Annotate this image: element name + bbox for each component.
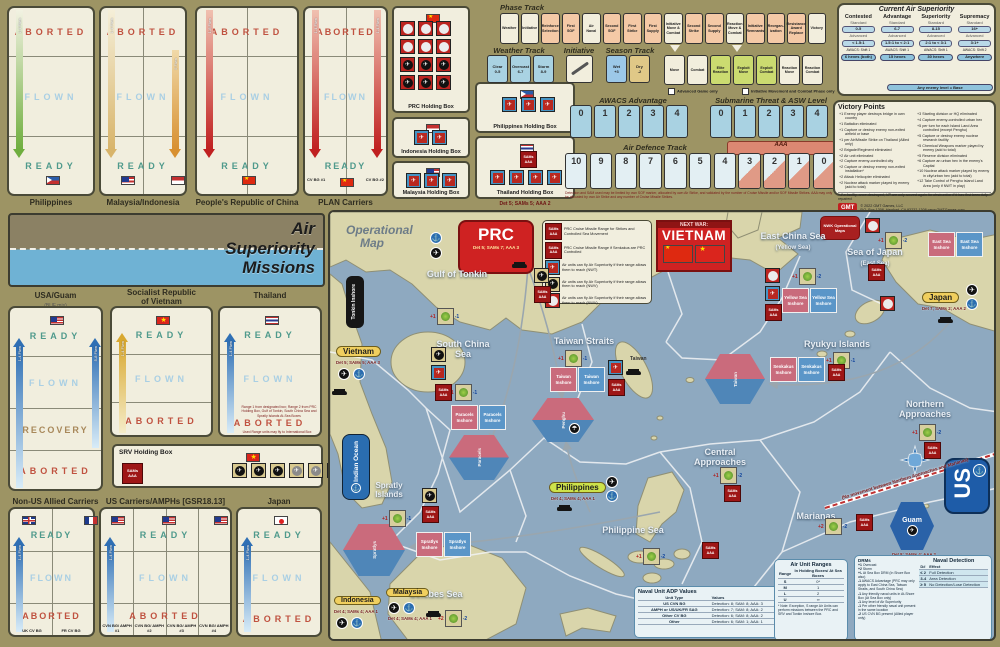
prc-flag-icon — [242, 176, 256, 185]
taiwan-label: Taiwan — [630, 356, 647, 362]
segment-cell[interactable]: Reaction Combat — [802, 55, 823, 85]
philippines-holding-box[interactable]: ✈ ✈ ✈ Philippines Holding Box — [475, 82, 575, 133]
air-superiority-panel: Current Air Superiority Contested Standa… — [837, 3, 996, 96]
air-unit-counter[interactable]: ✈ — [406, 173, 421, 188]
col-label: CV BG #2 — [366, 177, 384, 182]
air-unit-counter[interactable]: ✈ — [232, 463, 247, 478]
air-strike-icon[interactable]: ✈ — [336, 617, 348, 629]
air-unit-counter[interactable]: ✈ — [431, 347, 446, 362]
awacs-cell[interactable]: 4 — [666, 105, 688, 138]
air-defence-note: Detection and SAM used may be limited by… — [565, 191, 833, 200]
air-unit-counter[interactable]: ✈ — [251, 463, 266, 478]
prc-holding-box[interactable]: ✈✈✈ ✈✈✈ PRC Holding Box — [392, 6, 470, 113]
detection-marker-scs[interactable]: +1-1 — [448, 384, 477, 401]
flown-arrow: 1-4 Flwn — [309, 10, 322, 158]
indian-ocean-box[interactable]: Indian Ocean ⚓ — [342, 434, 370, 500]
vp-footnote: * If a facility, once destroyed, VP are … — [838, 192, 991, 202]
naval-anchor-icon[interactable]: ⚓ — [430, 232, 442, 244]
pointer-down-icon — [670, 45, 680, 52]
nwk-maps-box: NWK Operational Maps — [820, 216, 860, 240]
anchor-icon: ⚓ — [351, 483, 361, 493]
mission-box-usa-guam: READY FLOWN RECOVERY ABORTED 1-4 Flwn 5-… — [8, 306, 103, 491]
air-unit-counter[interactable] — [436, 21, 451, 36]
sea-label-straits: Taiwan Straits — [544, 337, 624, 347]
detection-marker-philsea[interactable]: +1-2 — [636, 548, 665, 565]
vp-item: +5 per turn for each Island Land Area co… — [923, 124, 991, 133]
mission-box-plan-carriers: ABORTED FLOWN READY 1-4 Flwn 1-4 Flwn CV… — [303, 6, 388, 196]
segment-cell[interactable]: Elite Reaction — [710, 55, 731, 85]
phase-cell[interactable]: Resistance Award Replace — [787, 13, 806, 44]
phase-track: WeatherInitiativeReinforce SelectionFirs… — [500, 13, 826, 44]
vp-list-right: +3 Starting division or HQ eliminated+4 … — [916, 112, 991, 191]
zone-ready: READY — [101, 519, 230, 551]
sams-aaa-counter[interactable]: SAMsAAA — [868, 264, 885, 281]
malaysia-pill[interactable]: Malaysia — [386, 588, 429, 597]
air-defence-cell[interactable]: 6 — [664, 153, 686, 189]
sams-aaa-counter[interactable]: SAMsAAA — [856, 514, 873, 531]
pointer-down-icon — [732, 45, 742, 52]
senkakus-inshore-boxes[interactable]: Senkakus InshoreSenkakus Inshore — [770, 357, 825, 382]
weather-track-title: Weather Track — [487, 46, 551, 55]
flown-arrow: 1-4 Flwn — [13, 10, 26, 158]
naval-anchor-icon[interactable]: ⚓ — [353, 368, 365, 380]
units: ✈ ✈ — [414, 130, 447, 145]
sams-aaa-counter[interactable]: SAMsAAA — [608, 379, 625, 396]
ready-arrow: 1-4 Flwn — [116, 333, 129, 433]
bomber-unit-counter[interactable]: ✈ — [418, 57, 433, 72]
spratlys-inshore-boxes[interactable]: Spratlys InshoreSpratlys Inshore — [416, 532, 471, 557]
air-strike-icon[interactable]: ✈ — [606, 476, 618, 488]
col-label: CV BG #1 — [307, 177, 325, 182]
ready-arrow: 1-4 Flwn — [241, 537, 254, 632]
bomber-unit-counter[interactable]: ✈ — [436, 75, 451, 90]
drm-list: +1 Overcast+2 Storm+/- At Sea Box DRM (I… — [858, 563, 916, 620]
vp-item: +5 Reserve division eliminated — [923, 154, 991, 158]
awacs-cell[interactable]: 1 — [594, 105, 616, 138]
legend-row: ✈Air units can fly Air Superiority if th… — [545, 277, 649, 292]
mission-box-nonus-carriers: READY FLOWN ABORTED 1-4 Flwn UK CV BG FR… — [8, 507, 95, 637]
segment-note-1: Advanced Game only — [668, 88, 718, 95]
legend-row: Air units can fly Air Superiority if the… — [545, 293, 649, 308]
detection-marker-tonkin[interactable]: +1-1 — [430, 308, 459, 325]
ready-arrow: 1-4 Flwn — [13, 537, 26, 632]
flown-arrow: 5 Flwn — [169, 50, 182, 158]
bomber-unit-counter[interactable]: ✈ — [400, 57, 415, 72]
air-unit-counter[interactable] — [865, 218, 880, 233]
vietnam-stats: Det 5; SAMs 5; AAA 3 — [336, 360, 380, 365]
adp-rows: US CVN BGDetection: 8; SAM: 8; AAA: 3AMP… — [638, 601, 790, 625]
detection-marker-ecs[interactable]: +1-2 — [792, 268, 821, 285]
legend-row: ✈Air units can fly Air Superiority if th… — [545, 260, 649, 275]
vp-item: +2 Brigade/Regiment eliminated — [845, 148, 913, 152]
air-superiority-column: Superiority Standard 8-15 Advanced 2:1 t… — [917, 14, 954, 61]
air-unit-counter[interactable]: ✈ — [765, 286, 780, 301]
col-label: CVN BG/ AMPH #2 — [133, 623, 165, 633]
vp-item: +1 per Air/Missile Strike on Thailand (A… — [845, 138, 913, 147]
adp-row: OtherDetection: 6; SAM: 1; AAA: 1 — [638, 619, 790, 625]
air-unit-counter[interactable]: ✈ — [502, 97, 517, 112]
phase-cell[interactable]: Air Naval — [582, 13, 601, 44]
thailand-title: Thailand — [218, 291, 322, 300]
units: ✈ ✈ ✈ ✈ — [490, 170, 562, 185]
detection-marker-central[interactable]: +1-2 — [713, 467, 742, 484]
submarine-cell[interactable]: 0 — [710, 105, 732, 138]
range-note: * Note: Exception, S range Air Units can… — [778, 604, 844, 616]
submarine-track: 01234 — [710, 105, 828, 138]
air-defence-cell[interactable]: 5 — [689, 153, 711, 189]
victory-points-panel: Victory Points +1 Enemy player destroys … — [833, 100, 996, 196]
helicopter-icon — [938, 316, 954, 324]
vp-item: +1 Enemy player destroys bridge in own c… — [845, 112, 913, 121]
sams-aaa-counter[interactable]: SAMsAAA — [520, 151, 537, 168]
season-wet-cell[interactable]: Wet+3 — [606, 55, 627, 83]
air-strike-icon[interactable]: ✈ — [388, 602, 400, 614]
box-label: Philippines — [7, 198, 95, 207]
prc-holding-units: ✈✈✈ ✈✈✈ — [400, 21, 466, 90]
air-unit-counter[interactable]: ✈ — [270, 463, 285, 478]
indonesia-flag-icon — [171, 176, 185, 185]
air-defence-cell[interactable]: 9 — [590, 153, 612, 189]
air-defence-cell[interactable]: 4 — [714, 153, 736, 189]
drm-item: +/- At Sea Box DRM (In Shore Box also) — [858, 571, 916, 579]
sams-aaa-counter[interactable]: SAMsAAA — [534, 286, 551, 303]
air-superiority-title: Current Air Superiority — [839, 6, 994, 13]
thailand-holding-box[interactable]: SAMsAAA ✈ ✈ ✈ ✈ Thailand Holding Box — [475, 136, 575, 199]
sams-aaa-counter[interactable]: SAMsAAA — [765, 304, 782, 321]
box-label: PLAN Carriers — [303, 198, 388, 207]
phase-cell[interactable]: Second SOF — [603, 13, 622, 44]
indonesia-icons: ✈ ⚓ — [336, 617, 363, 629]
air-unit-counter[interactable]: ✈ — [442, 173, 457, 188]
weather-cell[interactable]: Overcast6-7 — [510, 55, 531, 83]
submarine-cell[interactable]: 2 — [758, 105, 780, 138]
sams-aaa-counter[interactable]: SAMsAAA — [724, 485, 741, 502]
air-defence-title: Air Defence Track — [595, 143, 715, 152]
malaysia-icons: ✈ ⚓ — [388, 602, 415, 614]
air-unit-counter[interactable] — [400, 21, 415, 36]
bomber-unit-counter[interactable]: ✈ — [436, 57, 451, 72]
air-superiority-columns: Contested Standard 0-5 Advanced < 1.5:1 … — [839, 14, 994, 61]
sea-label-ryukyu: Ryukyu Islands — [792, 340, 882, 350]
air-unit-counter[interactable]: ✈ — [289, 463, 304, 478]
legend-row: SAMsAAAPRC Cruise Missile Range if Senka… — [545, 242, 649, 259]
air-unit-ranges-table: Air Unit Ranges Range In Holding Boxes/ … — [774, 559, 848, 641]
prc-flag-icon — [340, 178, 354, 187]
map-watermark: OperationalMap — [346, 224, 413, 250]
paracels-inshore-boxes[interactable]: Paracels InshoreParacels Inshore — [451, 405, 506, 430]
awacs-cell[interactable]: 3 — [642, 105, 664, 138]
air-strike-icon[interactable]: ✈ — [430, 247, 442, 259]
sams-aaa-counter[interactable]: SAMsAAA — [924, 442, 941, 459]
japan-icons: ✈ ⚓ — [966, 284, 978, 310]
vp-item: +2 Air unit eliminated — [845, 154, 913, 158]
mission-box-prc: ABORTED FLOWN READY 1-8 Flwn — [195, 6, 299, 196]
vp-item: +5 Chemical Weapons marker played by ene… — [923, 144, 991, 153]
bomber-unit-counter[interactable]: ✈ — [400, 75, 415, 90]
phase-cell[interactable]: Second Strike — [685, 13, 704, 44]
weather-track: Clear0-5Overcast6-7Storm8-9 — [487, 55, 554, 83]
weather-cell[interactable]: Clear0-5 — [487, 55, 508, 83]
air-unit-counter[interactable] — [418, 39, 433, 54]
mission-box-japan: READY FLOWN ABORTED 1-4 Flwn — [236, 507, 322, 637]
detection-marker-northern[interactable]: +1-2 — [912, 424, 941, 441]
awacs-cell[interactable]: 2 — [618, 105, 640, 138]
initiative-box[interactable] — [566, 55, 593, 83]
air-unit-counter[interactable]: ✈ — [528, 170, 543, 185]
sams-aaa-counter[interactable]: SAMsAAA — [435, 384, 452, 401]
vp-item: +2 Capture enemy-controlled city — [845, 159, 913, 163]
banner-title: AirSuperiorityMissions — [225, 219, 315, 278]
segment-cell[interactable]: Combat — [687, 55, 708, 85]
awacs-title: AWACS Advantage — [572, 96, 694, 105]
phase-cell[interactable]: Initiative Remnants — [746, 13, 765, 44]
box-label: Malaysia/Indonesia — [99, 198, 187, 207]
air-unit-counter[interactable] — [400, 39, 415, 54]
flown-arrow: 1-8 Flwn — [203, 10, 216, 158]
sea-label-philsea: Philippine Sea — [602, 526, 664, 536]
vietnam-pill[interactable]: Vietnam — [336, 346, 381, 357]
malaysia-holding-box[interactable]: ✈ ✈ ✈ Malaysia Holding Box — [392, 161, 470, 199]
det-rows: ≤ 2Full Detection3-4Area Detection≥ 5No … — [919, 570, 988, 588]
prc-label: PRC — [460, 225, 532, 245]
sams-aaa-counter[interactable]: SAMsAAA — [422, 506, 439, 523]
nonus-title: Non-US Allied Carriers — [8, 497, 103, 506]
tonkin-inshore-box[interactable]: Tonkin Inshore — [346, 276, 364, 328]
air-unit-counter[interactable]: ✈ — [422, 488, 437, 503]
detection-marker-spratly[interactable]: +1-1 — [382, 510, 411, 527]
helicopter-icon — [332, 388, 348, 396]
col-label: CVN BG/ AMPH #1 — [101, 623, 133, 633]
holding-box-label: PRC Holding Box — [394, 104, 468, 110]
sams-aaa-counter[interactable]: SAMsAAA — [122, 463, 143, 484]
air-unit-counter[interactable]: ✈ — [490, 170, 505, 185]
sea-label-central: Central Approaches — [685, 448, 755, 468]
drm-item: -1 Per other friendly naval unit present… — [858, 604, 916, 612]
naval-anchor-icon[interactable]: ⚓ — [351, 617, 363, 629]
taiwan-inshore-boxes[interactable]: Taiwan InshoreTaiwan Inshore — [550, 367, 605, 392]
air-unit-counter[interactable] — [418, 21, 433, 36]
us-carriers-title: US Carriers/AMPHs [GSR18.13] — [99, 497, 232, 506]
holding-box-label: Malaysia Holding Box — [394, 190, 468, 196]
vp-item: +10 Nuclear attack marker played by enem… — [923, 169, 991, 178]
naval-anchor-icon[interactable]: ⚓ — [403, 602, 415, 614]
air-unit-counter[interactable]: ✈ — [547, 170, 562, 185]
air-superiority-footer: Any enemy level = Base — [887, 84, 993, 91]
detection-marker-straits[interactable]: +1-1 — [558, 350, 587, 367]
phase-cell[interactable]: Weather — [500, 13, 519, 44]
phase-cell[interactable]: First Supply — [644, 13, 663, 44]
drm-list-wrap: DRMs +1 Overcast+2 Storm+/- At Sea Box D… — [858, 558, 916, 620]
helicopter-icon — [426, 610, 442, 618]
initiative-title: Initiative — [556, 46, 602, 55]
naval-anchor-icon: ⚓ — [973, 464, 986, 477]
submarine-cell[interactable]: 1 — [734, 105, 756, 138]
phase-cell[interactable]: Second Supply — [705, 13, 724, 44]
indonesia-holding-box[interactable]: ✈ ✈ Indonesia Holding Box — [392, 117, 470, 158]
sea-label-tonkin: Gulf of Tonkin — [426, 270, 488, 280]
vp-title: Victory Points — [838, 104, 991, 112]
phase-cell[interactable]: Reaction Move & Combat — [726, 13, 745, 44]
sams-aaa-counter[interactable]: SAMsAAA — [702, 542, 719, 559]
philippines-flag-icon — [46, 176, 60, 185]
air-defence-cell[interactable]: 1 — [788, 153, 810, 189]
vp-item: +1 Battalion eliminated — [845, 122, 913, 126]
air-unit-counter[interactable] — [765, 268, 780, 283]
drm-item: -1 Any friendly naval units in At-Shore … — [858, 592, 916, 600]
legend-row: SAMsAAAPRC Cruise Missile Range for Stri… — [545, 223, 649, 240]
submarine-title: Submarine Threat & ASW Level — [708, 96, 834, 105]
japan-pill[interactable]: Japan — [922, 292, 959, 303]
vp-item: +3 Starting division or HQ eliminated — [923, 112, 991, 116]
vp-item: +5 Capture or destroy enemy nuclear rese… — [923, 134, 991, 143]
vp-item: +2 Attack Helicopter eliminated — [845, 175, 913, 179]
air-unit-counter[interactable]: ✈ — [414, 130, 429, 145]
ready-arrow: 5-8 Flwn — [89, 338, 102, 448]
parachute-icon: ☂ — [569, 423, 580, 434]
japan-stats: Det 7; SAMs 2; AAA 2 — [922, 306, 966, 311]
us-label: US — [950, 468, 976, 499]
mission-box-thailand: READY FLOWN Range 1 from designated box;… — [218, 306, 322, 437]
air-unit-counter[interactable]: ✈ — [608, 360, 623, 375]
range-col2: In Holding Boxes/ At Sea Boxes — [792, 568, 844, 579]
philippines-stats: Det 4; SAMs 4; AAA 1 — [551, 496, 595, 501]
flown-arrow: 1-4 Flwn — [371, 10, 384, 158]
philippines-pill[interactable]: Philippines — [549, 482, 606, 493]
segment-row: MoveCombatElite ReactionExploit MoveExpl… — [664, 55, 823, 85]
mission-box-malaysia-indonesia: ABORTED FLOWN READY 1-4 Flwn 5 Flwn — [99, 6, 187, 196]
air-superiority-column: Contested Standard 0-5 Advanced < 1.5:1 … — [840, 14, 877, 61]
flown-arrow: 1-4 Flwn — [105, 10, 118, 158]
sams-aaa-counter[interactable]: SAMsAAA — [828, 364, 845, 381]
holding-box-label: Philippines Holding Box — [477, 124, 573, 130]
units: ✈ ✈ ✈ — [406, 173, 457, 188]
submarine-cell[interactable]: 3 — [782, 105, 804, 138]
segment-cell[interactable]: Exploit Move — [733, 55, 754, 85]
box-label: People's Republic of China — [195, 198, 299, 207]
units: ✈ ✈ ✈ — [502, 97, 555, 112]
air-strike-icon[interactable]: ✈ — [338, 368, 350, 380]
detection-marker-marianas[interactable]: +2-2 — [818, 518, 847, 535]
zone-flown: FLOWN — [101, 551, 230, 603]
map-legend: SAMsAAAPRC Cruise Missile Range for Stri… — [542, 220, 652, 304]
srv-holding-box[interactable]: SRV Holding Box SAMsAAA ✈ ✈ ✈ ✈ ✈ ✈ — [112, 444, 323, 488]
air-strike-icon[interactable]: ✈ — [966, 284, 978, 296]
prc-icons: ⚓ ✈ — [430, 232, 442, 259]
air-unit-counter[interactable] — [880, 296, 895, 311]
air-unit-counter[interactable]: ✈ — [432, 130, 447, 145]
east-sea-inshore-boxes[interactable]: East Sea InshoreEast Sea Inshore — [928, 232, 983, 257]
holding-box-label: Indonesia Holding Box — [394, 149, 468, 155]
weather-cell[interactable]: Storm8-9 — [533, 55, 554, 83]
adp-values-table: Naval Unit ADP Values Unit Type Values U… — [634, 586, 794, 638]
air-unit-counter[interactable]: ✈ — [521, 97, 536, 112]
air-superiority-column: Advantage Standard 6-7 Advanced 1.5:1 to… — [879, 14, 916, 61]
air-unit-counter[interactable]: ✈ — [424, 173, 439, 188]
air-defence-cell[interactable]: 10 — [565, 153, 587, 189]
air-unit-counter[interactable]: ✈ — [540, 97, 555, 112]
operational-map: OperationalMap ⚓ ✈ PRC Det 5; SAMs 7; AA… — [328, 210, 996, 641]
naval-anchor-icon[interactable]: ⚓ — [606, 490, 618, 502]
air-defence-cell[interactable]: 2 — [763, 153, 785, 189]
sea-label-spratly: Spratly Islands — [362, 482, 416, 500]
cruise-missile-counter-icon: SAMsAAA — [545, 223, 562, 240]
air-unit-counter[interactable]: ✈ — [308, 463, 323, 478]
checkbox-icon — [668, 88, 675, 95]
submarine-cell[interactable]: 4 — [806, 105, 828, 138]
ready-arrow: 1-4 Flwn — [13, 338, 26, 488]
det-row: ≥ 5No Detection/Lose Detection — [919, 582, 988, 588]
bomber-unit-counter[interactable]: ✈ — [418, 75, 433, 90]
vietnam-flag-icon — [246, 453, 260, 462]
drm-item: -1 AWACS Advantage (PRC may only apply t… — [858, 579, 916, 591]
range-rows: S0*M1L2U∞ — [778, 579, 844, 603]
naval-detection-panel: DRMs +1 Overcast+2 Storm+/- At Sea Box D… — [854, 555, 992, 641]
phase-cell[interactable]: Reorgan- ization — [767, 13, 786, 44]
phase-cell[interactable]: Initiative — [521, 13, 540, 44]
air-unit-counter[interactable]: ✈ — [431, 365, 446, 380]
indonesia-pill[interactable]: Indonesia — [334, 596, 381, 605]
vp-list-left: +1 Enemy player destroys bridge in own c… — [838, 112, 913, 191]
ready-arrow: 1-4 Flwn — [104, 537, 117, 632]
air-unit-counter[interactable]: ✈ — [509, 170, 524, 185]
srv-title: Socialist Republicof Vietnam — [110, 288, 213, 306]
mission-box-srv: READY FLOWN ABORTED 1-4 Flwn — [110, 306, 213, 437]
phase-track-title: Phase Track — [500, 3, 590, 12]
air-strike-icon: ✈ — [907, 525, 918, 536]
air-defence-cell[interactable]: 8 — [615, 153, 637, 189]
game-title-box: NEXT WAR: VIETNAM — [656, 220, 732, 272]
holding-box-label: Thailand Holding Box — [477, 190, 573, 196]
season-track: Wet+3 Dry-2 — [606, 55, 650, 83]
naval-anchor-icon[interactable]: ⚓ — [966, 298, 978, 310]
air-unit-counter[interactable] — [436, 39, 451, 54]
thailand-stats: Det 5; SAMs 5; AAA 2 — [475, 201, 575, 207]
segment-cell[interactable]: Move — [664, 55, 685, 85]
cruise-missile-counter-icon: SAMsAAA — [545, 242, 562, 259]
vp-item: +4 Capture enemy-controlled urban hex — [923, 118, 991, 122]
helicopter-icon — [512, 261, 528, 269]
range-col1: Range — [778, 568, 792, 579]
segment-cell[interactable]: Exploit Combat — [756, 55, 777, 85]
prc-country-box[interactable]: PRC Det 5; SAMs 7; AAA 3 — [458, 220, 534, 274]
vp-item: +2 Nuclear attack marker played by enemy… — [845, 181, 913, 190]
checkbox-icon — [742, 88, 749, 95]
air-defence-cell[interactable]: 3 — [738, 153, 760, 189]
prc-flag-icon — [663, 245, 693, 263]
drm-item: -2 US CVN BG present (Allied player only… — [858, 612, 916, 620]
air-superiority-column: Supremacy Standard 16+ Advanced 3:1+ AWA… — [956, 14, 993, 61]
air-defence-cell[interactable]: 0 — [813, 153, 835, 189]
phase-cell[interactable]: First Strike — [623, 13, 642, 44]
awacs-cell[interactable]: 0 — [570, 105, 592, 138]
phase-cell[interactable]: Reinforce Selection — [541, 13, 560, 44]
yellow-sea-inshore-boxes[interactable]: Yellow Sea InshoreYellow Sea Inshore — [782, 288, 837, 313]
air-unit-counter[interactable]: ✈ — [534, 268, 549, 283]
air-defence-track: 109876543210 — [565, 153, 835, 189]
segment-cell[interactable]: Reaction Move — [779, 55, 800, 85]
season-dry-cell[interactable]: Dry-2 — [629, 55, 650, 83]
detection-marker-celebes[interactable]: +2-2 — [438, 610, 467, 627]
helicopter-icon — [626, 368, 642, 376]
phase-cell[interactable]: Initiative Move & Combat — [664, 13, 683, 44]
mission-box-us-carriers: READY FLOWN ABORTED 1-4 Flwn CVN BG/ AMP… — [99, 507, 232, 637]
detection-marker-soj[interactable]: +1-2 — [878, 232, 907, 249]
indonesia-stats: Det 4; SAMs 4; AAA 1 — [334, 609, 378, 614]
vp-item: +1 Capture or destroy enemy non-exited a… — [845, 128, 913, 137]
phase-cell[interactable]: First SOF — [562, 13, 581, 44]
phase-cell[interactable]: Victory — [808, 13, 827, 44]
air-defence-cell[interactable]: 7 — [639, 153, 661, 189]
